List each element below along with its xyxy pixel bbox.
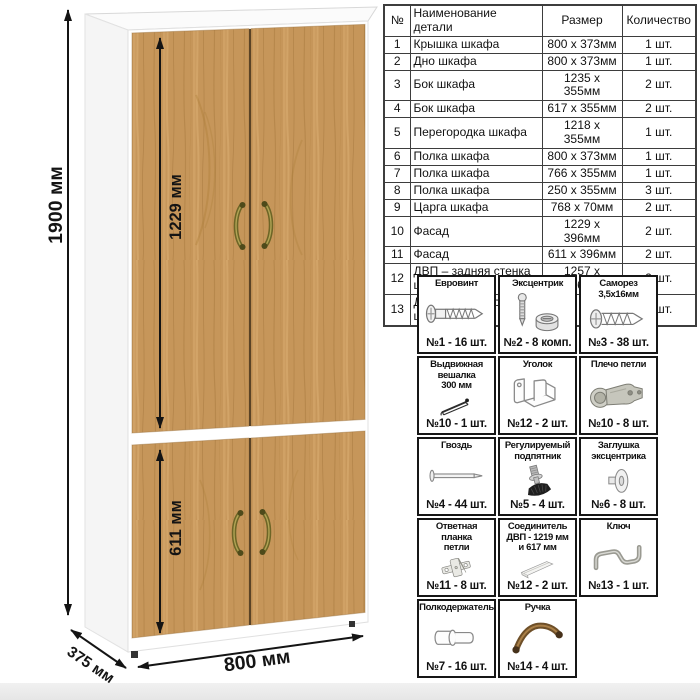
part-name: Полка шкафа bbox=[410, 165, 542, 182]
hardware-item-count: №13 - 1 шт. bbox=[588, 580, 649, 592]
part-size: 617 х 355мм bbox=[542, 101, 622, 118]
row-number: 10 bbox=[384, 216, 410, 247]
row-number: 4 bbox=[384, 101, 410, 118]
hardware-item-count: №7 - 16 шт. bbox=[426, 661, 487, 673]
hardware-item-title: Ответная планка петли bbox=[420, 522, 493, 554]
table-row: 6Полка шкафа800 х 373мм1 шт. bbox=[384, 148, 696, 165]
part-quantity: 1 шт. bbox=[622, 53, 696, 70]
part-size: 768 х 70мм bbox=[542, 199, 622, 216]
row-number: 3 bbox=[384, 70, 410, 101]
hardware-item: Ключ№13 - 1 шт. bbox=[579, 518, 658, 597]
part-quantity: 1 шт. bbox=[622, 148, 696, 165]
handle-icon bbox=[501, 614, 574, 661]
row-number: 13 bbox=[384, 294, 410, 325]
part-name: Перегородка шкафа bbox=[410, 118, 542, 149]
part-size: 1229 х 396мм bbox=[542, 216, 622, 247]
hardware-item-count: №3 - 38 шт. bbox=[588, 337, 649, 349]
hardware-item-title: Выдвижная вешалка 300 мм bbox=[430, 360, 483, 392]
euro-screw-icon bbox=[420, 290, 493, 337]
row-number: 2 bbox=[384, 53, 410, 70]
hardware-item-title: Регулируемый подпятник bbox=[505, 441, 570, 462]
hdf-connector-icon bbox=[501, 554, 574, 580]
table-row: 8Полка шкафа250 х 355мм3 шт. bbox=[384, 182, 696, 199]
part-name: Царга шкафа bbox=[410, 199, 542, 216]
table-row: 10Фасад1229 х 396мм2 шт. bbox=[384, 216, 696, 247]
lower-dimension-label: 611 мм bbox=[167, 500, 185, 556]
hardware-item: Ручка№14 - 4 шт. bbox=[498, 599, 577, 678]
hardware-item-count: №6 - 8 шт. bbox=[591, 499, 645, 511]
depth-dimension-label: 375 мм bbox=[64, 643, 118, 687]
part-name: Крышка шкафа bbox=[410, 36, 542, 53]
shelf-pin-icon bbox=[420, 614, 493, 661]
upper-dimension-label: 1229 мм bbox=[167, 174, 185, 240]
assembly-diagram: 1900 мм 1229 мм 611 мм 800 мм 375 мм № Н… bbox=[0, 0, 700, 700]
part-name: Полка шкафа bbox=[410, 148, 542, 165]
hardware-item: Регулируемый подпятник№5 - 4 шт. bbox=[498, 437, 577, 516]
hardware-item: Соединитель ДВП - 1219 мм и 617 мм№12 - … bbox=[498, 518, 577, 597]
cabinet-foot bbox=[131, 651, 138, 658]
table-row: 5Перегородка шкафа1218 х 355мм1 шт. bbox=[384, 118, 696, 149]
part-quantity: 2 шт. bbox=[622, 70, 696, 101]
table-header-row: № Наименование детали Размер Количество bbox=[384, 5, 696, 36]
hardware-item: Саморез 3,5х16мм№3 - 38 шт. bbox=[579, 275, 658, 354]
part-name: Бок шкафа bbox=[410, 101, 542, 118]
hardware-item-title: Заглушка эксцентрика bbox=[591, 441, 646, 462]
row-number: 11 bbox=[384, 247, 410, 264]
height-dimension-label: 1900 мм bbox=[45, 166, 67, 244]
row-number: 1 bbox=[384, 36, 410, 53]
hardware-item-title: Уголок bbox=[523, 360, 552, 371]
bottom-strip bbox=[0, 683, 700, 700]
hardware-item-title: Саморез 3,5х16мм bbox=[598, 279, 638, 300]
table-row: 1Крышка шкафа800 х 373мм1 шт. bbox=[384, 36, 696, 53]
adjustable-foot-icon bbox=[501, 462, 574, 499]
cabinet-foot bbox=[349, 621, 355, 627]
row-number: 5 bbox=[384, 118, 410, 149]
door-upper-right bbox=[251, 24, 365, 426]
part-quantity: 2 шт. bbox=[622, 199, 696, 216]
hardware-item-title: Эксцентрик bbox=[512, 279, 563, 290]
col-header-name: Наименование детали bbox=[410, 5, 542, 36]
col-header-size: Размер bbox=[542, 5, 622, 36]
width-dimension-label: 800 мм bbox=[223, 646, 292, 677]
hardware-item-title: Полкодержатель bbox=[419, 603, 494, 614]
table-row: 9Царга шкафа768 х 70мм2 шт. bbox=[384, 199, 696, 216]
table-row: 4Бок шкафа617 х 355мм2 шт. bbox=[384, 101, 696, 118]
hex-key-icon bbox=[582, 533, 655, 580]
row-number: 7 bbox=[384, 165, 410, 182]
hardware-item-count: №1 - 16 шт. bbox=[426, 337, 487, 349]
nail-icon bbox=[420, 452, 493, 499]
row-number: 8 bbox=[384, 182, 410, 199]
part-size: 250 х 355мм bbox=[542, 182, 622, 199]
hardware-item-title: Соединитель ДВП - 1219 мм и 617 мм bbox=[506, 522, 568, 554]
part-quantity: 1 шт. bbox=[622, 118, 696, 149]
hardware-item: Выдвижная вешалка 300 мм№10 - 1 шт. bbox=[417, 356, 496, 435]
part-quantity: 2 шт. bbox=[622, 216, 696, 247]
hardware-item-count: №14 - 4 шт. bbox=[507, 661, 568, 673]
table-row: 3Бок шкафа1235 х 355мм2 шт. bbox=[384, 70, 696, 101]
hardware-item-count: №10 - 1 шт. bbox=[426, 418, 487, 430]
part-name: Фасад bbox=[410, 247, 542, 264]
wardrobe-illustration: 1900 мм 1229 мм 611 мм 800 мм 375 мм bbox=[0, 0, 400, 700]
hardware-grid: Евровинт№1 - 16 шт.Эксцентрик№2 - 8 комп… bbox=[417, 275, 658, 678]
part-size: 766 х 355мм bbox=[542, 165, 622, 182]
part-size: 611 х 396мм bbox=[542, 247, 622, 264]
hardware-item: Евровинт№1 - 16 шт. bbox=[417, 275, 496, 354]
hardware-item: Заглушка эксцентрика№6 - 8 шт. bbox=[579, 437, 658, 516]
self-tapping-screw-icon bbox=[582, 300, 655, 337]
corner-bracket-icon bbox=[501, 371, 574, 418]
hardware-item-title: Евровинт bbox=[435, 279, 478, 290]
hinge-plate-icon bbox=[420, 554, 493, 580]
hardware-item-title: Ключ bbox=[607, 522, 631, 533]
hardware-item-count: №10 - 8 шт. bbox=[588, 418, 649, 430]
hardware-item: Плечо петли№10 - 8 шт. bbox=[579, 356, 658, 435]
eccentric-cam-icon bbox=[501, 290, 574, 337]
hardware-item-count: №5 - 4 шт. bbox=[510, 499, 564, 511]
hardware-item-title: Ручка bbox=[525, 603, 550, 614]
hardware-item: Эксцентрик№2 - 8 комп. bbox=[498, 275, 577, 354]
part-size: 1235 х 355мм bbox=[542, 70, 622, 101]
part-size: 1218 х 355мм bbox=[542, 118, 622, 149]
row-number: 9 bbox=[384, 199, 410, 216]
table-row: 2Дно шкафа800 х 373мм1 шт. bbox=[384, 53, 696, 70]
row-number: 6 bbox=[384, 148, 410, 165]
hinge-arm-icon bbox=[582, 371, 655, 418]
hardware-item-count: №11 - 8 шт. bbox=[427, 580, 487, 592]
hardware-item-title: Плечо петли bbox=[591, 360, 646, 371]
hardware-item: Ответная планка петли№11 - 8 шт. bbox=[417, 518, 496, 597]
hardware-item: Уголок№12 - 2 шт. bbox=[498, 356, 577, 435]
part-size: 800 х 373мм bbox=[542, 148, 622, 165]
part-name: Полка шкафа bbox=[410, 182, 542, 199]
hardware-item: Гвоздь№4 - 44 шт. bbox=[417, 437, 496, 516]
hardware-item-count: №12 - 2 шт. bbox=[507, 580, 568, 592]
hardware-item-title: Гвоздь bbox=[441, 441, 472, 452]
part-quantity: 1 шт. bbox=[622, 36, 696, 53]
col-header-number: № bbox=[384, 5, 410, 36]
pullout-hanger-icon bbox=[420, 392, 493, 418]
hardware-item: Полкодержатель№7 - 16 шт. bbox=[417, 599, 496, 678]
part-quantity: 3 шт. bbox=[622, 182, 696, 199]
table-row: 7Полка шкафа766 х 355мм1 шт. bbox=[384, 165, 696, 182]
part-quantity: 2 шт. bbox=[622, 101, 696, 118]
door-lower-left bbox=[132, 438, 249, 638]
col-header-qty: Количество bbox=[622, 5, 696, 36]
cam-cover-icon bbox=[582, 462, 655, 499]
part-name: Фасад bbox=[410, 216, 542, 247]
part-name: Бок шкафа bbox=[410, 70, 542, 101]
part-quantity: 2 шт. bbox=[622, 247, 696, 264]
part-quantity: 1 шт. bbox=[622, 165, 696, 182]
hardware-item-count: №4 - 44 шт. bbox=[426, 499, 487, 511]
row-number: 12 bbox=[384, 264, 410, 295]
hardware-item-count: №2 - 8 комп. bbox=[504, 337, 572, 349]
table-row: 11Фасад611 х 396мм2 шт. bbox=[384, 247, 696, 264]
part-size: 800 х 373мм bbox=[542, 36, 622, 53]
door-upper-left bbox=[132, 29, 249, 433]
part-size: 800 х 373мм bbox=[542, 53, 622, 70]
part-name: Дно шкафа bbox=[410, 53, 542, 70]
hardware-item-count: №12 - 2 шт. bbox=[507, 418, 568, 430]
